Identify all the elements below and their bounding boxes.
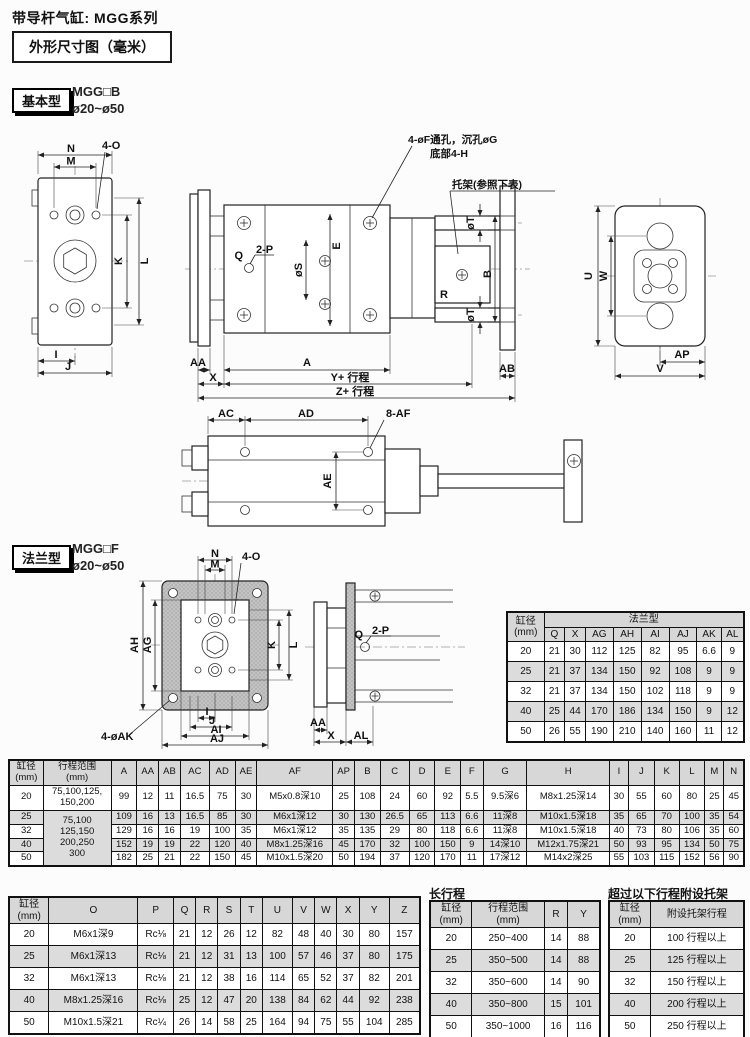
dim-Z-stroke: Z+ 行程	[336, 384, 374, 398]
dim-AE: AE	[322, 473, 334, 488]
table-cell: 56	[705, 852, 724, 866]
table-cell: 26.5	[380, 810, 409, 824]
callout-flange-2P: 2-P	[372, 625, 389, 637]
table-cell: 135	[355, 824, 381, 838]
table-cell: 164	[262, 1012, 292, 1035]
header-row: 缸径(mm)行程范围(mm)AAAABACADAEAFAPBCDEFGHIJKL…	[9, 760, 744, 785]
dim-W: W	[598, 270, 610, 281]
table-cell: 80	[679, 785, 705, 810]
table-cell: 103	[629, 852, 655, 866]
callout-2P: 2-P	[256, 244, 273, 256]
table-cell: 37	[337, 946, 359, 968]
table-cell: 35	[333, 824, 355, 838]
table-cell: 73	[629, 824, 655, 838]
table-cell: 50	[430, 1016, 472, 1037]
table-cell: 70	[654, 810, 679, 824]
table-cell: 238	[389, 990, 420, 1012]
table-cell: 50	[705, 838, 724, 852]
table-cell: 90	[568, 972, 600, 994]
dim-K: K	[113, 257, 125, 265]
column-header: 缸径(mm)	[9, 897, 49, 924]
table-cell: 37	[337, 968, 359, 990]
table-cell: 30	[565, 642, 586, 662]
table-cell: 250 行程以上	[650, 1016, 744, 1037]
table-cell: 94	[292, 1012, 314, 1035]
dim-phiT-bottom: øT	[465, 308, 477, 322]
flange-type-drawing: N M 4-O AH AG K L I	[95, 548, 505, 756]
table-row: 2521371341509210899	[507, 662, 744, 682]
table-cell: 26	[544, 722, 565, 743]
dim-N: N	[67, 143, 75, 155]
callout-bracket-note: 托架(参照下表)	[452, 178, 522, 191]
dim-flange-L: L	[288, 641, 300, 648]
table-cell: 113	[435, 810, 461, 824]
table-row: 20213011212582956.69	[507, 642, 744, 662]
table-cell: 90	[724, 852, 744, 866]
column-header: Q	[544, 627, 565, 642]
column-header: H	[527, 760, 609, 785]
table-cell: 12	[721, 702, 744, 722]
table-cell: 12	[196, 990, 218, 1012]
table-cell: 14	[196, 1012, 218, 1035]
table-cell: 25	[9, 946, 49, 968]
column-header: AJ	[669, 627, 697, 642]
table-cell: 100	[409, 838, 435, 852]
table-cell: 350~1000	[472, 1016, 544, 1037]
table-cell: 55	[565, 722, 586, 743]
column-header: AK	[697, 627, 721, 642]
column-header: AB	[159, 760, 181, 785]
table-cell: 38	[218, 968, 240, 990]
column-header: AD	[209, 760, 235, 785]
table-cell: 44	[565, 702, 586, 722]
table-cell: 150	[613, 662, 641, 682]
basic-model: MGG□B	[72, 84, 124, 101]
table-cell: 138	[262, 990, 292, 1012]
table-cell: 104	[359, 1012, 389, 1035]
dim-L: L	[139, 257, 151, 264]
dim-AD: AD	[298, 408, 314, 420]
table-cell: 170	[435, 852, 461, 866]
table-cell: 152	[679, 852, 705, 866]
table-cell: 9	[721, 642, 744, 662]
table-cell: 6.6	[461, 824, 483, 838]
dim-I: I	[54, 349, 57, 361]
table-cell: 45	[724, 785, 744, 810]
table-cell: 14	[544, 928, 567, 950]
flange-dimensions-table: 缸径(mm)法兰型QXAGAHAIAJAKAL20213011212582956…	[506, 611, 745, 743]
column-header: AH	[613, 627, 641, 642]
table-cell: 95	[654, 838, 679, 852]
basic-bore: ø20~ø50	[72, 101, 124, 118]
table-row: 40M8x1.25深16Rc⅛2512472013884624492238	[9, 990, 420, 1012]
basic-side-view: U W AP V	[583, 198, 716, 380]
table-cell: 26	[173, 1012, 195, 1035]
table-cell: 32	[9, 968, 49, 990]
table-cell: M14x2深25	[527, 852, 609, 866]
table-row: 402544170186134150912	[507, 702, 744, 722]
table-cell: Rc⅛	[138, 924, 173, 946]
table-cell: 50	[507, 722, 544, 743]
table-cell: M8x1.25深14	[527, 785, 609, 810]
column-header: E	[435, 760, 461, 785]
table-cell: 16	[159, 824, 181, 838]
table-cell: 108	[355, 785, 381, 810]
header-row: 缸径(mm)OPQRSTUVWXYZ	[9, 897, 420, 924]
main-dimensions-table: 缸径(mm)行程范围(mm)AAAABACADAEAFAPBCDEFGHIJKL…	[8, 759, 745, 867]
table-cell: 25	[507, 662, 544, 682]
table-cell: 100	[209, 824, 235, 838]
table-cell: 16	[544, 1016, 567, 1037]
column-header: T	[240, 897, 262, 924]
table-cell: 140	[641, 722, 669, 743]
table-cell: 11	[159, 785, 181, 810]
table-cell: 157	[389, 924, 420, 946]
column-header: D	[409, 760, 435, 785]
table-cell: 101	[568, 994, 600, 1016]
column-header: AF	[257, 760, 333, 785]
table-cell: 21	[544, 642, 565, 662]
table-cell: 80	[409, 824, 435, 838]
table-cell: 75	[209, 785, 235, 810]
table-cell: 40	[235, 838, 257, 852]
table-cell: 100	[679, 810, 705, 824]
table-cell: 82	[262, 924, 292, 946]
table-cell: 35	[235, 824, 257, 838]
dim-AC: AC	[218, 408, 234, 420]
column-header: O	[49, 897, 138, 924]
column-header: N	[724, 760, 744, 785]
table-cell: M5x0.8深10	[257, 785, 333, 810]
table-cell: 37	[565, 682, 586, 702]
dim-A: A	[303, 357, 311, 369]
column-header: V	[292, 897, 314, 924]
table-cell: 24	[380, 785, 409, 810]
table-row: 25350~5001488	[430, 950, 600, 972]
table-cell: 12	[240, 924, 262, 946]
table-cell: 50	[9, 1012, 49, 1035]
table-cell: 65	[629, 810, 655, 824]
table-cell: 11	[461, 852, 483, 866]
table-cell: 21	[544, 662, 565, 682]
column-header: B	[355, 760, 381, 785]
table-row: 4015219192212040M8x1.25深1645170321001509…	[9, 838, 744, 852]
table-cell: 9	[461, 838, 483, 852]
table-cell: 80	[654, 824, 679, 838]
column-header: R	[544, 901, 567, 928]
table-cell: 13	[240, 946, 262, 968]
basic-type-drawing: N M 4-O K L I J	[10, 128, 745, 406]
table-cell: 112	[585, 642, 613, 662]
column-header: K	[654, 760, 679, 785]
table-cell: M8x1.25深16	[49, 990, 138, 1012]
table-cell: 57	[292, 946, 314, 968]
table-cell: 52	[315, 968, 337, 990]
table-cell: M10x1.5深20	[257, 852, 333, 866]
column-header: S	[218, 897, 240, 924]
table-cell: 186	[613, 702, 641, 722]
table-cell: 6.6	[697, 642, 721, 662]
table-row: 25M6x1深13Rc⅛2112311310057463780175	[9, 946, 420, 968]
table-cell: 9	[721, 662, 744, 682]
table-cell: 54	[724, 810, 744, 824]
table-cell: 60	[724, 824, 744, 838]
dim-flange-K: K	[266, 641, 278, 649]
column-header: F	[461, 760, 483, 785]
bracket-stroke-table: 缸径(mm)附设托架行程20100 行程以上25125 行程以上32150 行程…	[608, 900, 745, 1037]
table-cell: 40	[430, 994, 472, 1016]
table-cell: 134	[679, 838, 705, 852]
table-cell: 19	[137, 838, 159, 852]
table-cell: 46	[315, 946, 337, 968]
table-cell: 32	[9, 824, 43, 838]
column-header: L	[679, 760, 705, 785]
table-cell: 150	[209, 852, 235, 866]
table-cell: 125	[613, 642, 641, 662]
table-cell: 17深12	[483, 852, 527, 866]
column-header: AC	[180, 760, 209, 785]
table-cell: M6x1深12	[257, 824, 333, 838]
table-row: 20250~4001488	[430, 928, 600, 950]
table-cell: 16	[137, 810, 159, 824]
basic-front-view: N M 4-O K L I J	[24, 140, 151, 377]
table-cell: 25	[609, 950, 650, 972]
table-cell: 25	[430, 950, 472, 972]
table-cell: 35	[609, 810, 628, 824]
dim-R: R	[440, 289, 448, 301]
dim-E: E	[331, 242, 343, 249]
table-cell: 350~500	[472, 950, 544, 972]
dim-AB: AB	[499, 363, 515, 375]
dim-AP: AP	[674, 349, 689, 361]
table-cell: 200 行程以上	[650, 994, 744, 1016]
callout-hole-note-2: 底部4-H	[430, 147, 468, 160]
column-header: 法兰型	[544, 612, 744, 627]
table-cell: 16	[137, 824, 159, 838]
table-cell: 20	[609, 928, 650, 950]
table-cell: 100 行程以上	[650, 928, 744, 950]
table-cell: 12	[137, 785, 159, 810]
table-cell: 84	[292, 990, 314, 1012]
table-cell: 50	[609, 1016, 650, 1037]
table-cell: 92	[641, 662, 669, 682]
dimension-box-title: 外形尺寸图（毫米）	[12, 31, 172, 63]
table-cell: 9	[697, 702, 721, 722]
table-cell: 12	[196, 968, 218, 990]
table-cell: 150	[435, 838, 461, 852]
column-header: 缸径(mm)	[9, 760, 43, 785]
table-cell: 12	[196, 924, 218, 946]
column-header: A	[111, 760, 137, 785]
column-header: M	[705, 760, 724, 785]
table-cell: 134	[585, 662, 613, 682]
dim-AJ: AJ	[210, 733, 224, 745]
table-cell: 75	[724, 838, 744, 852]
flange-front-view: N M 4-O AH AG K L I	[101, 548, 300, 749]
table-cell: 16.5	[180, 810, 209, 824]
table-cell: 99	[111, 785, 137, 810]
column-header: C	[380, 760, 409, 785]
column-header: AI	[641, 627, 669, 642]
table-cell: 26	[218, 924, 240, 946]
column-header: AA	[137, 760, 159, 785]
table-cell: Rc⅛	[138, 946, 173, 968]
flange-side-screws	[370, 591, 380, 701]
table-cell: 16	[240, 968, 262, 990]
dim-flange-AA: AA	[310, 717, 326, 729]
table-cell: 6.6	[461, 810, 483, 824]
column-header: Z	[389, 897, 420, 924]
table-cell: 150	[613, 682, 641, 702]
table-cell: 109	[111, 810, 137, 824]
header-row: 缸径(mm)法兰型	[507, 612, 744, 627]
table-cell: 20	[430, 928, 472, 950]
table-cell: 14深10	[483, 838, 527, 852]
table-cell: 11深8	[483, 810, 527, 824]
table-cell: 32	[380, 838, 409, 852]
basic-bottom-view: AC AD 8-AF AE	[182, 408, 582, 526]
table-cell: 11	[697, 722, 721, 743]
secondary-dimensions-table: 缸径(mm)OPQRSTUVWXYZ20M6x1深9Rc⅛21122612824…	[8, 896, 421, 1035]
table-cell: 95	[669, 642, 697, 662]
table-cell: 20	[9, 785, 43, 810]
basic-bottom-view-drawing: AC AD 8-AF AE	[180, 404, 530, 539]
table-cell: 40	[507, 702, 544, 722]
table-cell: 201	[389, 968, 420, 990]
table-cell: 80	[359, 946, 389, 968]
column-header: W	[315, 897, 337, 924]
column-header: G	[483, 760, 527, 785]
table-cell: 50	[609, 838, 628, 852]
table-cell: 125 行程以上	[650, 950, 744, 972]
table-cell: 9.5深6	[483, 785, 527, 810]
table-cell: 47	[218, 990, 240, 1012]
table-cell: 25	[544, 702, 565, 722]
dim-AH: AH	[129, 637, 141, 653]
table-cell: M6x1深9	[49, 924, 138, 946]
table-cell: 21	[173, 924, 195, 946]
table-row: 32213713415010211899	[507, 682, 744, 702]
table-row: 32350~6001490	[430, 972, 600, 994]
column-header: Y	[359, 897, 389, 924]
table-cell: 106	[679, 824, 705, 838]
header-row: 缸径(mm)行程范围(mm)RY	[430, 901, 600, 928]
table-cell: 350~600	[472, 972, 544, 994]
table-cell: 9	[697, 682, 721, 702]
table-cell: 40	[609, 994, 650, 1016]
table-cell: 40	[609, 824, 628, 838]
dim-Y-stroke: Y+ 行程	[331, 370, 370, 384]
table-cell: M12x1.75深21	[527, 838, 609, 852]
table-cell: 82	[641, 642, 669, 662]
table-row: 20M6x1深9Rc⅛211226128248403080157	[9, 924, 420, 946]
table-cell: 82	[359, 968, 389, 990]
table-cell: 58	[218, 1012, 240, 1035]
table-cell: M6x1深13	[49, 946, 138, 968]
dim-AG: AG	[142, 637, 154, 654]
table-cell: 170	[585, 702, 613, 722]
table-cell: 21	[173, 946, 195, 968]
table-cell: 25	[9, 810, 43, 824]
table-cell: 170	[355, 838, 381, 852]
table-row: 2575,100125,150200,250300109161316.58530…	[9, 810, 744, 824]
table-cell: 9	[721, 682, 744, 702]
table-row: 50250 行程以上	[609, 1016, 744, 1037]
table-cell: 35	[705, 824, 724, 838]
table-cell: 108	[669, 662, 697, 682]
table-cell: 350~800	[472, 994, 544, 1016]
column-header: X	[565, 627, 586, 642]
callout-flange-4O: 4-O	[242, 551, 261, 563]
dim-flange-X: X	[327, 730, 335, 742]
table-cell: M8x1.25深16	[257, 838, 333, 852]
table-cell: 55	[337, 1012, 359, 1035]
dim-U: U	[583, 272, 595, 280]
column-header: P	[138, 897, 173, 924]
table-cell: 102	[641, 682, 669, 702]
column-header: Y	[568, 901, 600, 928]
table-cell: 32	[507, 682, 544, 702]
table-row: 32M6x1深13Rc⅛2112381611465523782201	[9, 968, 420, 990]
table-cell: Rc⅛	[138, 990, 173, 1012]
table-cell: 21	[159, 852, 181, 866]
table-cell: M10x1.5深18	[527, 824, 609, 838]
table-cell: 37	[380, 852, 409, 866]
column-header: Q	[173, 897, 195, 924]
table-cell: 25	[333, 785, 355, 810]
table-row: 25125 行程以上	[609, 950, 744, 972]
table-cell: 48	[292, 924, 314, 946]
table-row: 50M10x1.5深21Rc¼26145825164947555104285	[9, 1012, 420, 1035]
table-cell: M10x1.5深18	[527, 810, 609, 824]
table-cell: 21	[544, 682, 565, 702]
table-cell: 32	[609, 972, 650, 994]
table-cell: 45	[235, 852, 257, 866]
table-cell: 15	[544, 994, 567, 1016]
table-cell: 60	[654, 785, 679, 810]
table-cell: 25	[137, 852, 159, 866]
table-cell: 55	[609, 852, 628, 866]
column-header: AP	[333, 760, 355, 785]
table-cell: 44	[337, 990, 359, 1012]
table-cell: 29	[380, 824, 409, 838]
flange-type-tag: 法兰型	[12, 545, 71, 570]
table-cell: 20	[507, 642, 544, 662]
table-cell: 175	[389, 946, 420, 968]
table-cell: 30	[235, 810, 257, 824]
table-cell: 134	[585, 682, 613, 702]
table-cell: 25	[240, 1012, 262, 1035]
table-cell: 129	[111, 824, 137, 838]
table-cell: 14	[544, 950, 567, 972]
table-cell: 150	[669, 702, 697, 722]
table-cell: 250~400	[472, 928, 544, 950]
table-cell: 285	[389, 1012, 420, 1035]
table-cell: 35	[705, 810, 724, 824]
flange-side-view: Q 2-P AA X AL	[305, 583, 465, 746]
table-cell: 65	[292, 968, 314, 990]
column-header: J	[629, 760, 655, 785]
dim-X: X	[209, 372, 217, 384]
table-cell: 210	[613, 722, 641, 743]
table-cell: 65	[409, 810, 435, 824]
table-cell: 194	[355, 852, 381, 866]
table-cell: Rc¼	[138, 1012, 173, 1035]
dim-flange-M: M	[210, 559, 219, 571]
callout-8AF: 8-AF	[386, 408, 411, 420]
table-cell: 130	[355, 810, 381, 824]
table-cell: 100	[262, 946, 292, 968]
